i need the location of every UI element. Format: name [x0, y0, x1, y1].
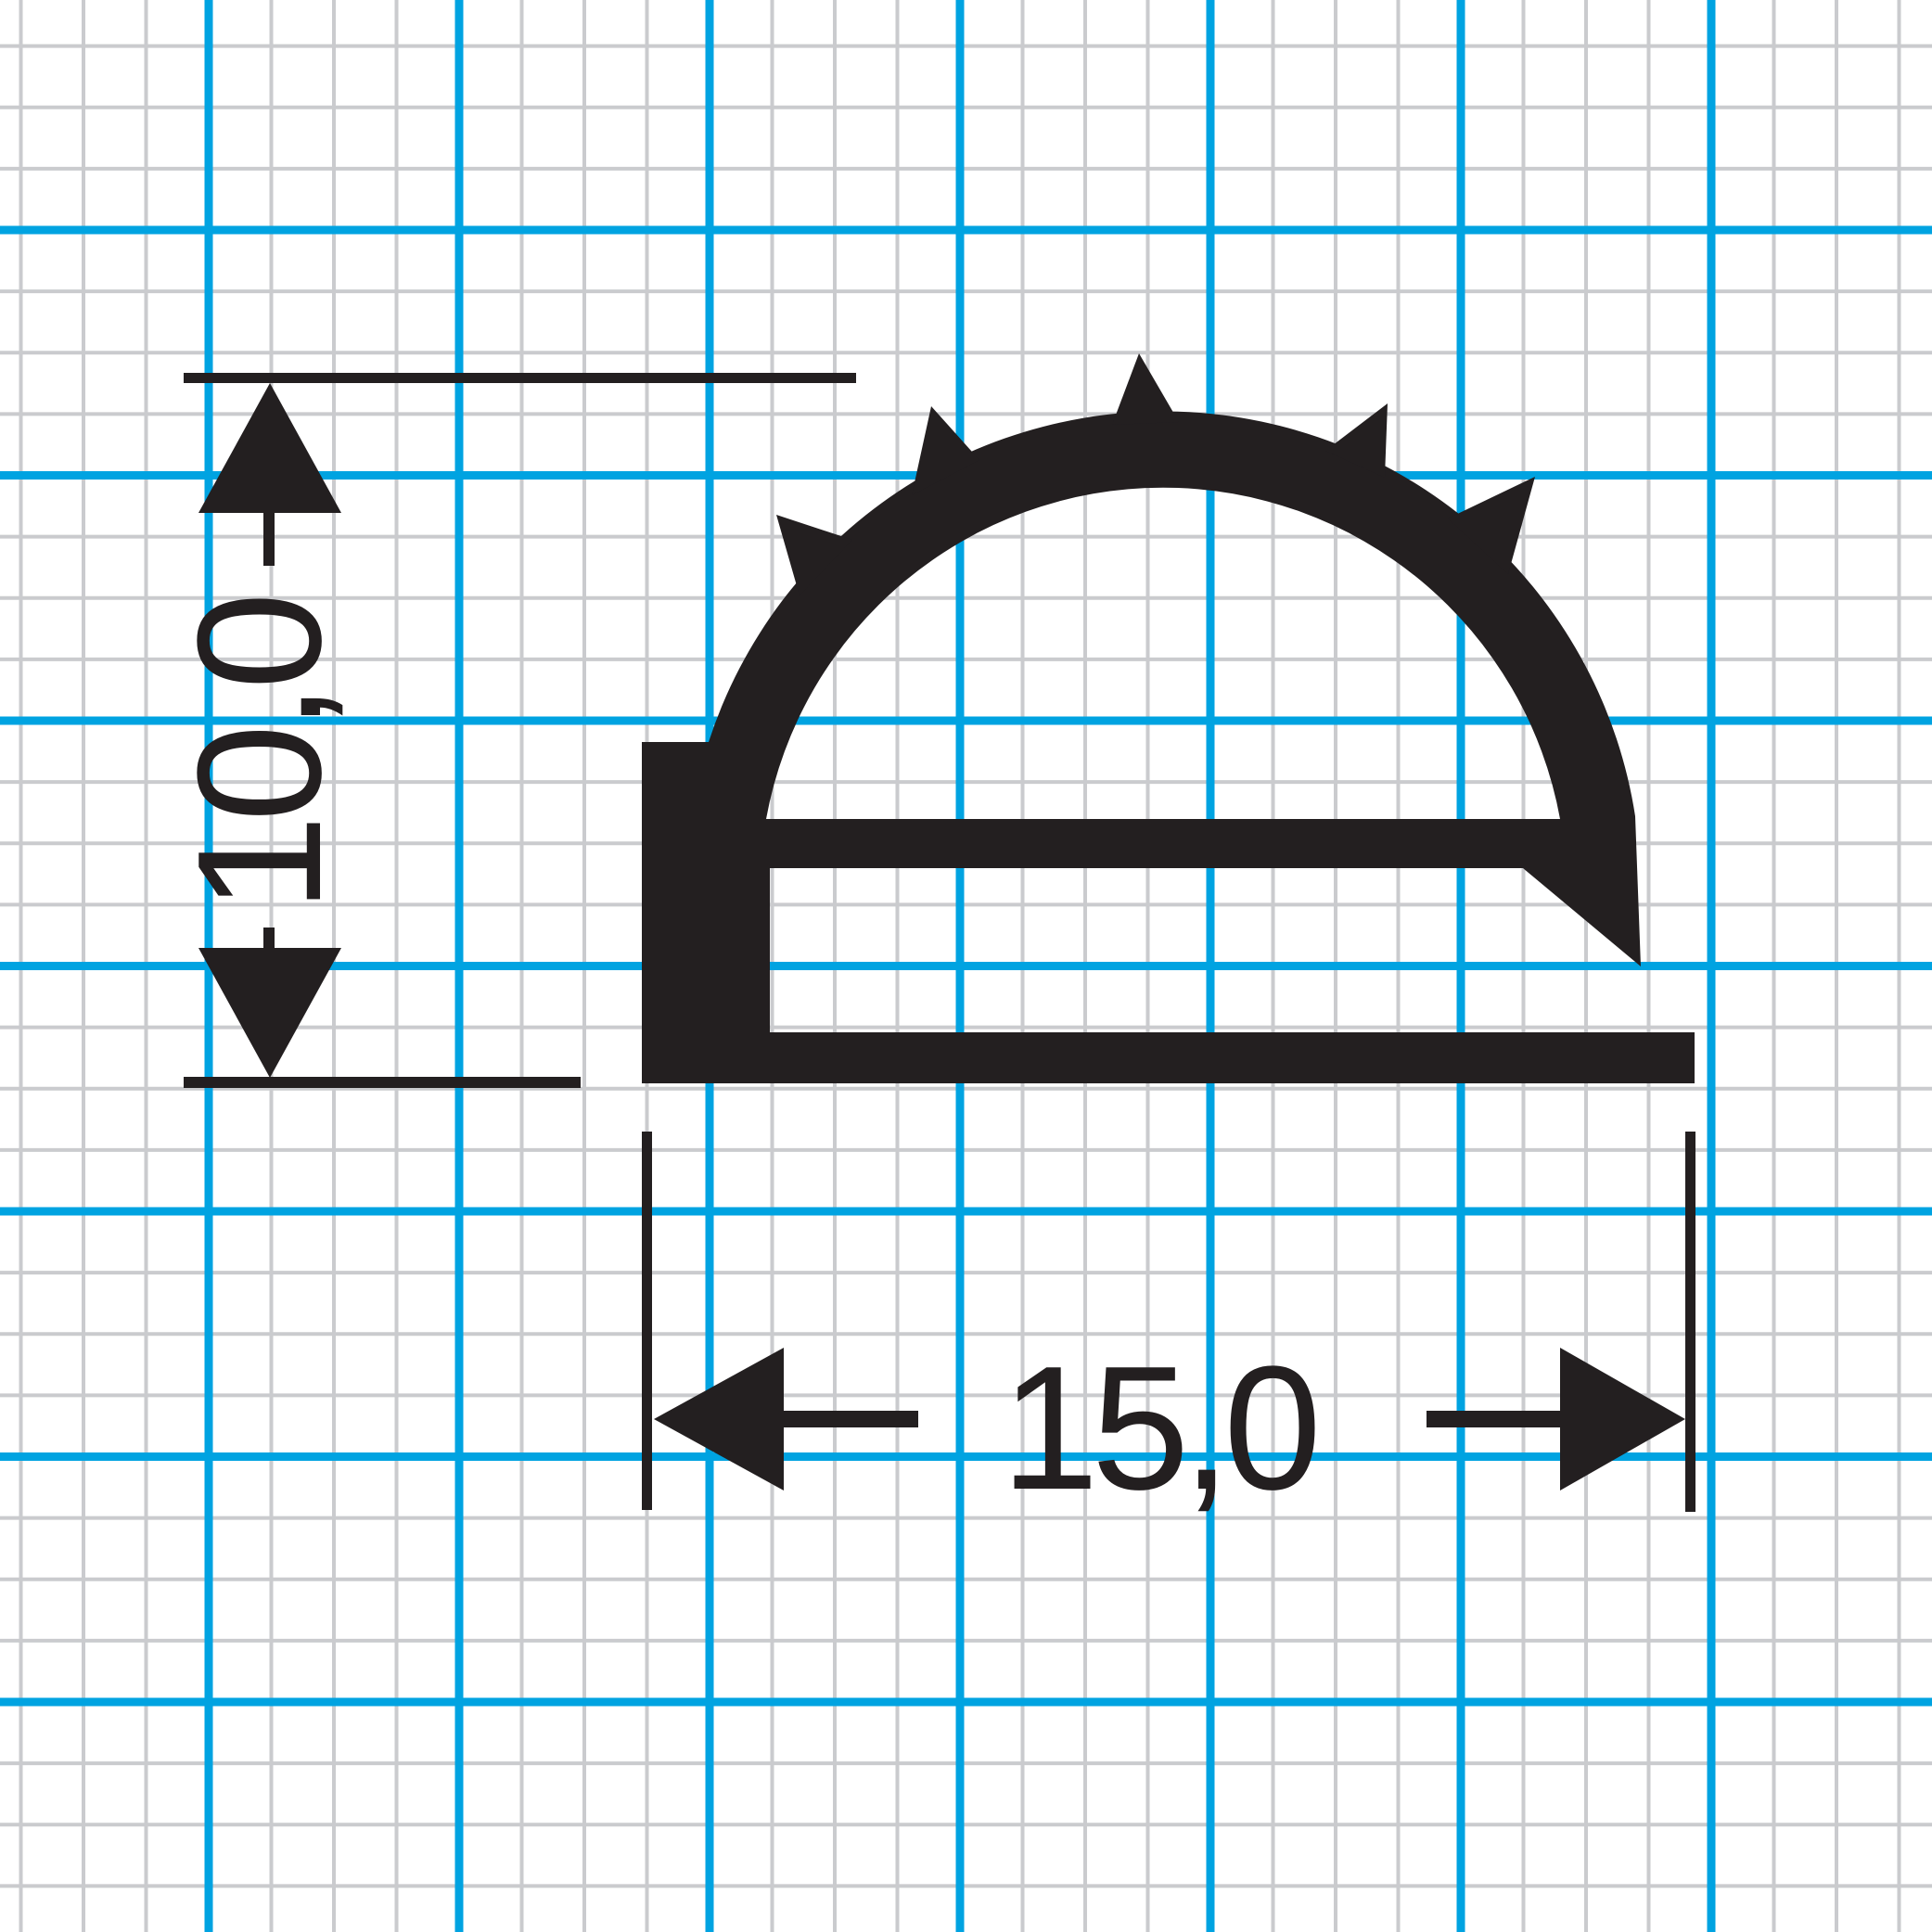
- horizontal-dimension-label: 15,0: [1001, 1330, 1315, 1527]
- graph-paper: 10,0 15,0: [0, 0, 1932, 1932]
- profile-outline: [642, 411, 1695, 1083]
- drawing-svg: 10,0 15,0: [0, 0, 1932, 1932]
- dimension-horizontal: 15,0: [642, 1132, 1695, 1527]
- vertical-dimension-label: 10,0: [161, 598, 358, 913]
